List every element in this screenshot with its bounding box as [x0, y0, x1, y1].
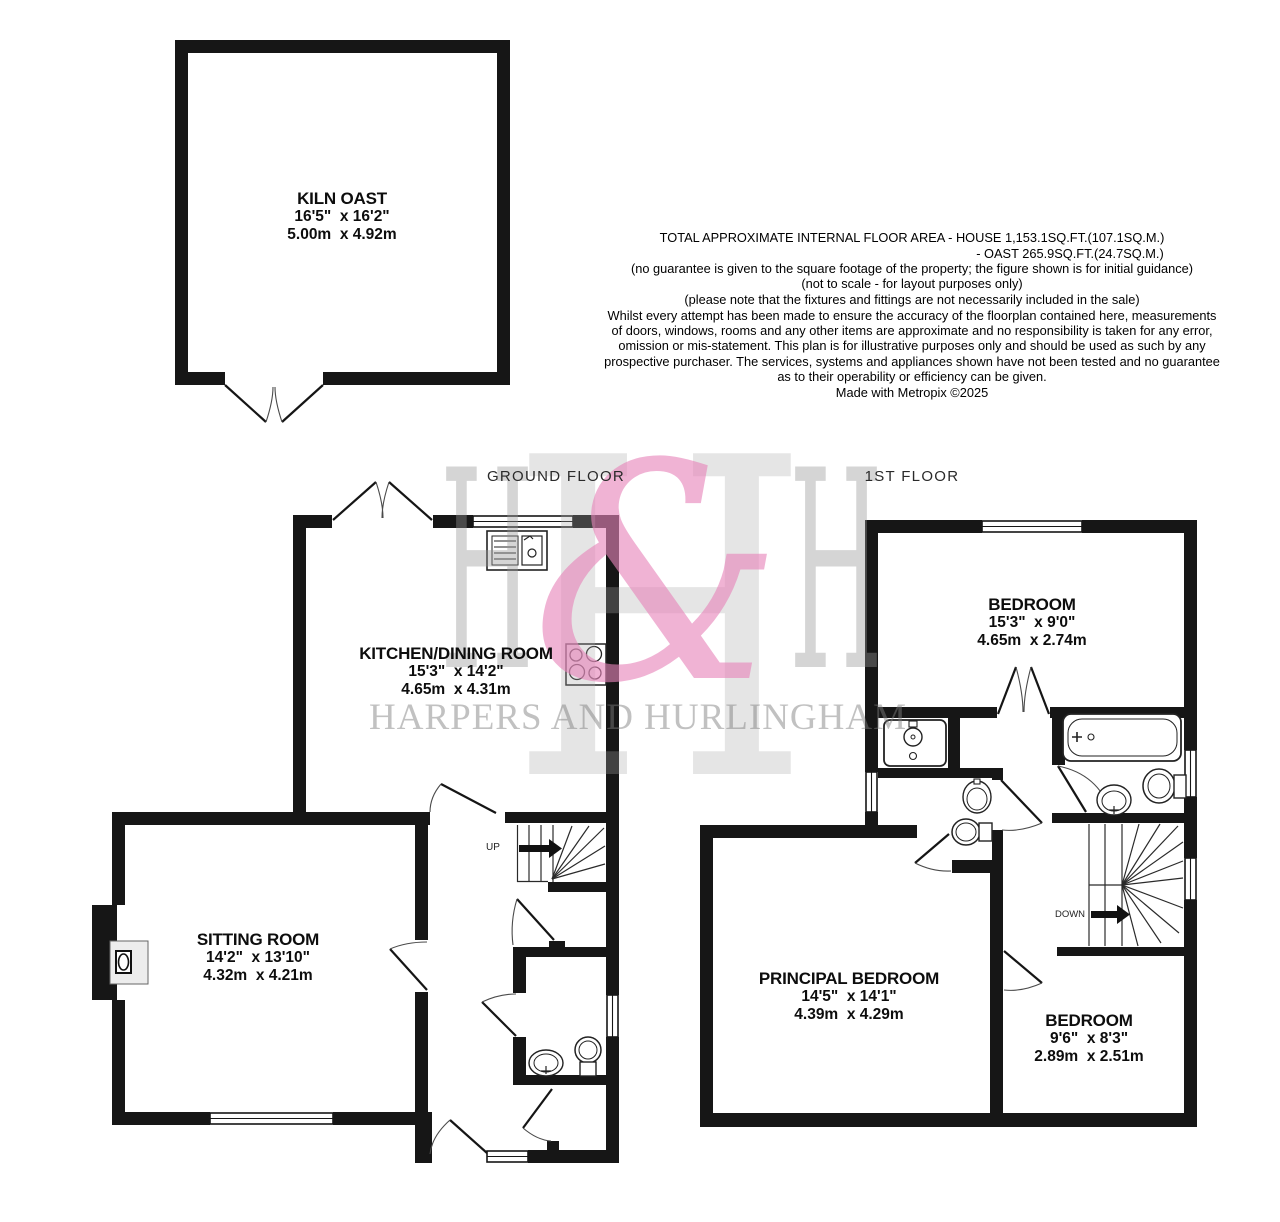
room-dim-imperial: 16'5" x 16'2"	[222, 208, 462, 226]
front-door	[430, 1120, 487, 1154]
wc-toilet-icon	[575, 1037, 601, 1076]
room-dim-metric: 5.00m x 4.92m	[222, 226, 462, 244]
shower-room-toilet-icon	[952, 819, 992, 845]
room-name: SITTING ROOM	[138, 931, 378, 949]
wc-door	[482, 994, 516, 1036]
kiln-double-door	[225, 385, 323, 422]
sitting-room-door	[390, 942, 427, 990]
room-dim-imperial: 9'6" x 8'3"	[969, 1030, 1209, 1048]
room-name: BEDROOM	[969, 1012, 1209, 1030]
kitchen-sink-icon	[487, 531, 547, 570]
total-area-house: TOTAL APPROXIMATE INTERNAL FLOOR AREA - …	[592, 230, 1232, 245]
shower-room-basin-icon	[963, 779, 991, 813]
legal-disclaimer: Whilst every attempt has been made to en…	[592, 308, 1232, 385]
room-dim-metric: 4.39m x 4.29m	[729, 1006, 969, 1024]
down-arrow-icon	[1091, 905, 1130, 924]
kitchen-hall-door	[430, 784, 496, 813]
principal-bedroom-door	[915, 834, 951, 871]
small-bedroom-door	[1004, 951, 1042, 990]
shower-room-door	[1001, 780, 1042, 830]
room-dim-metric: 4.65m x 4.31m	[336, 681, 576, 699]
floorplan-page: H H H & HARPERS AND HURLINGHAM KILN OAST…	[0, 0, 1280, 1222]
stairs-up-label: UP	[478, 842, 508, 853]
understairs-door	[512, 899, 554, 945]
room-name: BEDROOM	[912, 596, 1152, 614]
metropix-credit: Made with Metropix ©2025	[592, 385, 1232, 400]
bath-icon	[1063, 714, 1181, 761]
room-name: PRINCIPAL BEDROOM	[729, 970, 969, 988]
staircase-down	[1089, 824, 1183, 946]
room-dim-imperial: 14'5" x 14'1"	[729, 988, 969, 1006]
total-area-oast: - OAST 265.9SQ.FT.(24.7SQ.M.)	[760, 246, 1280, 261]
ground-floor-plan	[92, 482, 619, 1163]
kitchen-dining-label: KITCHEN/DINING ROOM 15'3" x 14'2" 4.65m …	[336, 645, 576, 699]
wc-basin-icon	[529, 1050, 563, 1076]
shower-icon	[884, 720, 946, 766]
bathroom-toilet-icon	[1143, 769, 1186, 803]
first-floor-title: 1ST FLOOR	[792, 468, 1032, 485]
staircase-up	[517, 825, 605, 882]
bathroom-basin-icon	[1097, 785, 1131, 815]
ground-floor-title: GROUND FLOOR	[436, 468, 676, 485]
room-dim-metric: 4.65m x 2.74m	[912, 632, 1152, 650]
bedroom-double-door	[998, 667, 1049, 714]
room-dim-imperial: 15'3" x 9'0"	[912, 614, 1152, 632]
room-dim-metric: 2.89m x 2.51m	[969, 1048, 1209, 1066]
room-dim-imperial: 14'2" x 13'10"	[138, 949, 378, 967]
sitting-room-label: SITTING ROOM 14'2" x 13'10" 4.32m x 4.21…	[138, 931, 378, 985]
principal-bedroom-label: PRINCIPAL BEDROOM 14'5" x 14'1" 4.39m x …	[729, 970, 969, 1024]
room-dim-imperial: 15'3" x 14'2"	[336, 663, 576, 681]
room-name: KILN OAST	[222, 190, 462, 208]
room-dim-metric: 4.32m x 4.21m	[138, 967, 378, 985]
porch-inner-door	[523, 1089, 552, 1141]
stairs-down-label: DOWN	[1050, 909, 1090, 920]
bedroom-top-label: BEDROOM 15'3" x 9'0" 4.65m x 2.74m	[912, 596, 1152, 650]
room-name: KITCHEN/DINING ROOM	[336, 645, 576, 663]
bedroom-small-label: BEDROOM 9'6" x 8'3" 2.89m x 2.51m	[969, 1012, 1209, 1066]
kitchen-patio-doors	[333, 482, 432, 520]
ground-floor-fixtures	[110, 531, 606, 1076]
guarantee-note: (no guarantee is given to the square foo…	[592, 261, 1232, 307]
kiln-oast-label: KILN OAST 16'5" x 16'2" 5.00m x 4.92m	[222, 190, 462, 244]
